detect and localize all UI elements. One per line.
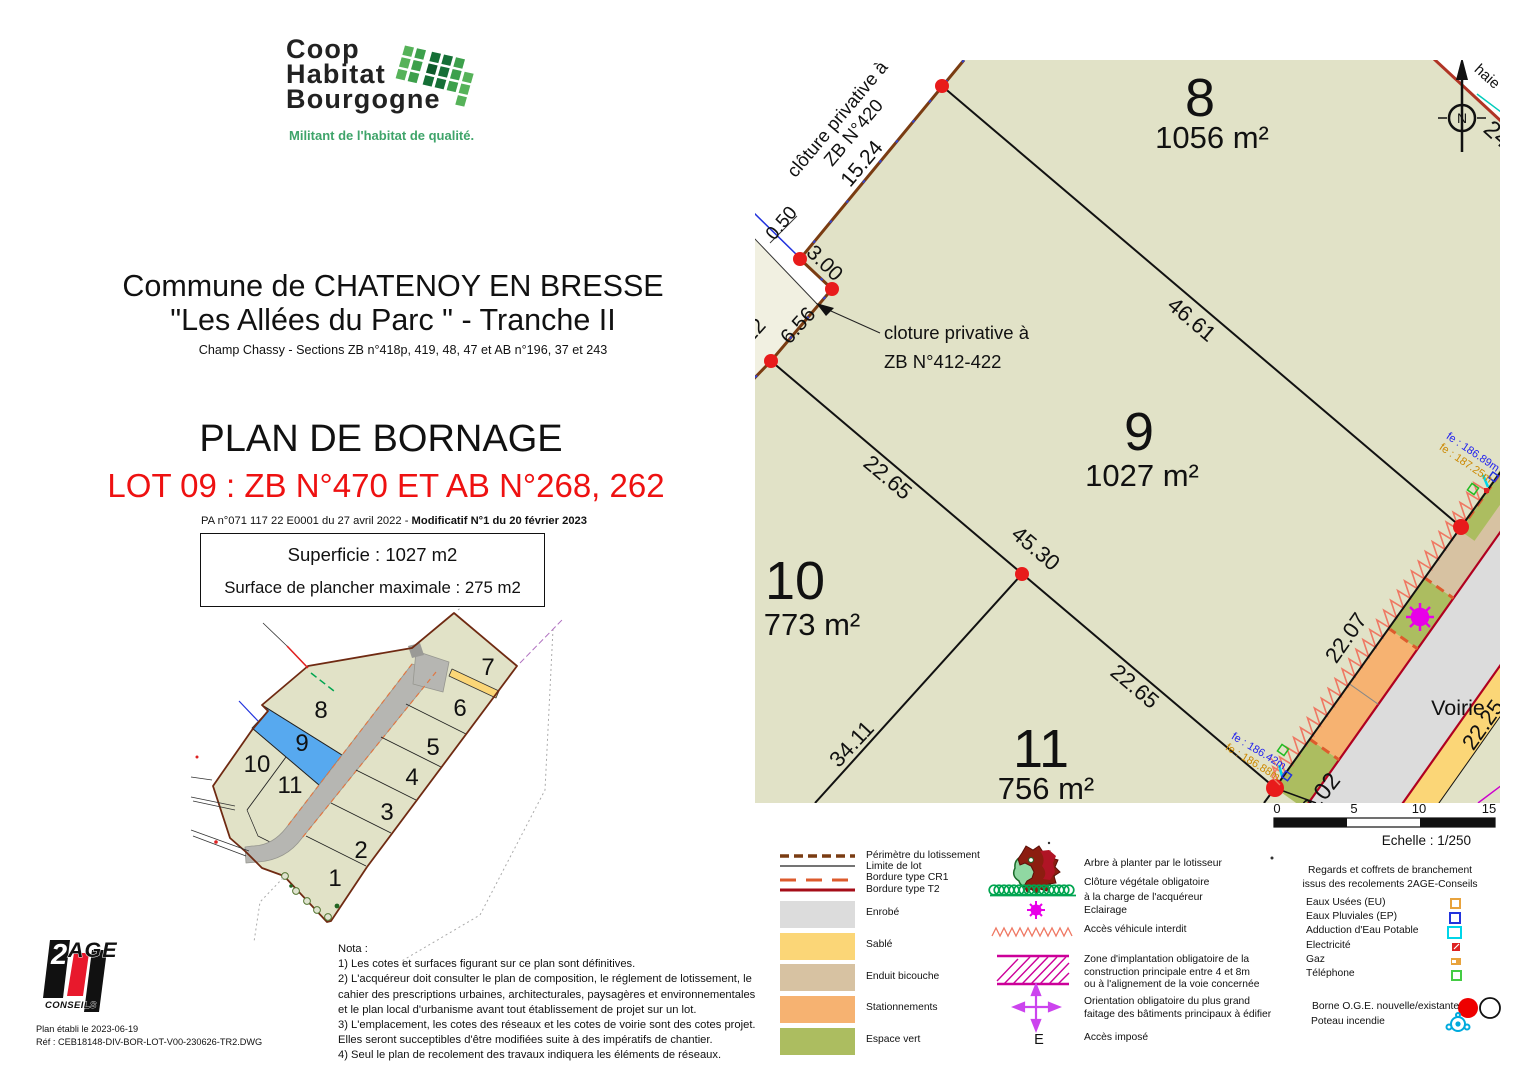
- svg-text:15: 15: [1482, 801, 1496, 816]
- svg-text:11: 11: [278, 772, 303, 799]
- svg-text:756 m²: 756 m²: [998, 771, 1094, 806]
- svg-text:10: 10: [1412, 801, 1426, 816]
- svg-text:7: 7: [481, 654, 494, 681]
- svg-text:0: 0: [1273, 801, 1280, 816]
- svg-text:ZB N°412-422: ZB N°412-422: [884, 351, 1001, 372]
- svg-text:8: 8: [1185, 68, 1215, 128]
- svg-text:1: 1: [328, 865, 341, 892]
- svg-text:cloture privative à: cloture privative à: [884, 322, 1030, 343]
- svg-text:773 m²: 773 m²: [764, 607, 860, 642]
- svg-text:1056 m²: 1056 m²: [1155, 120, 1269, 155]
- svg-text:Voirie: Voirie: [1431, 696, 1485, 720]
- svg-text:5: 5: [426, 734, 439, 761]
- svg-text:CONSEILS: CONSEILS: [45, 1000, 97, 1011]
- svg-text:3: 3: [380, 799, 393, 826]
- svg-text:9: 9: [295, 730, 308, 757]
- svg-text:E: E: [1034, 1032, 1044, 1048]
- svg-text:10: 10: [765, 551, 825, 611]
- svg-text:N: N: [1457, 110, 1467, 126]
- svg-text:4: 4: [405, 764, 418, 791]
- svg-text:AGE: AGE: [67, 938, 118, 962]
- svg-text:9: 9: [1124, 402, 1154, 462]
- svg-text:2: 2: [50, 939, 67, 971]
- svg-text:10: 10: [244, 751, 271, 778]
- svg-text:6: 6: [453, 695, 466, 722]
- svg-text:5: 5: [1350, 801, 1357, 816]
- svg-text:11: 11: [1013, 719, 1069, 779]
- svg-text:1027 m²: 1027 m²: [1085, 458, 1199, 493]
- svg-text:Echelle : 1/250: Echelle : 1/250: [1382, 833, 1471, 848]
- svg-text:8: 8: [314, 697, 327, 724]
- svg-text:2: 2: [354, 837, 367, 864]
